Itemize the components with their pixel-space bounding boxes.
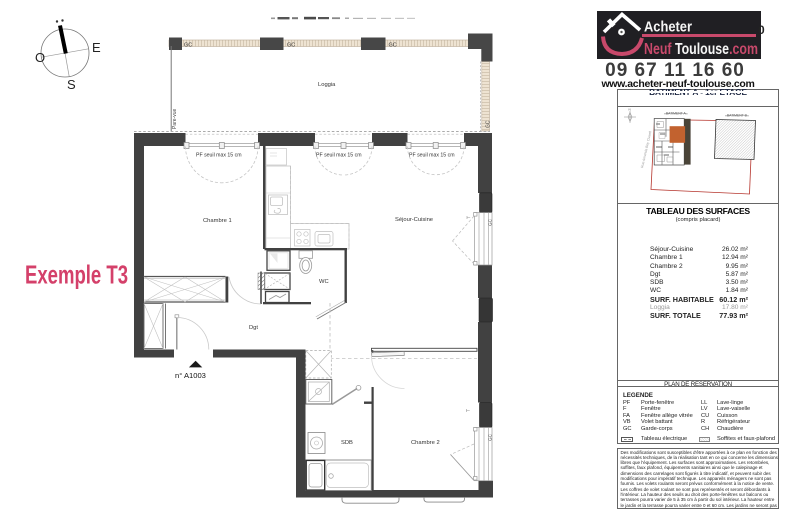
svg-text:GC: GC xyxy=(184,43,192,49)
svg-text:N: N xyxy=(628,108,630,112)
svg-text:Rue Amanda Bey Clavell: Rue Amanda Bey Clavell xyxy=(640,131,652,169)
svg-text:Séjour-Cuisine: Séjour-Cuisine xyxy=(395,217,433,223)
svg-text:PF seuil max 15 cm: PF seuil max 15 cm xyxy=(196,153,242,159)
svg-text:PF seuil max 15 cm: PF seuil max 15 cm xyxy=(316,153,362,159)
svg-text:Loggia: Loggia xyxy=(318,82,336,88)
svg-text:Chambre 2: Chambre 2 xyxy=(411,440,440,446)
svg-text:Exemple T3: Exemple T3 xyxy=(25,260,128,290)
svg-text:O: O xyxy=(35,50,45,65)
svg-text:GC: GC xyxy=(488,433,493,441)
svg-text:n° A1003: n° A1003 xyxy=(175,371,206,380)
svg-text:S: S xyxy=(67,77,76,92)
svg-text:Pare-vue: Pare-vue xyxy=(172,108,178,129)
svg-text:Acheter: Acheter xyxy=(644,18,692,35)
svg-text:Chambre 1: Chambre 1 xyxy=(203,218,232,224)
svg-text:Dgt: Dgt xyxy=(249,325,258,331)
svg-text:Neuf Toulouse.com: Neuf Toulouse.com xyxy=(644,41,758,58)
svg-text:GC: GC xyxy=(486,120,492,128)
svg-text:PF seuil max 15 cm: PF seuil max 15 cm xyxy=(409,153,455,159)
svg-text:E: E xyxy=(92,40,101,55)
svg-text:..BATIMENT A..: ..BATIMENT A.. xyxy=(664,112,688,116)
svg-text:GC: GC xyxy=(287,43,295,49)
svg-text:GC: GC xyxy=(389,43,397,49)
svg-text:..BATIMENT B..: ..BATIMENT B.. xyxy=(725,114,749,118)
svg-text:SDB: SDB xyxy=(341,440,353,446)
svg-text:WC: WC xyxy=(319,279,329,285)
svg-text:GC: GC xyxy=(488,218,493,226)
